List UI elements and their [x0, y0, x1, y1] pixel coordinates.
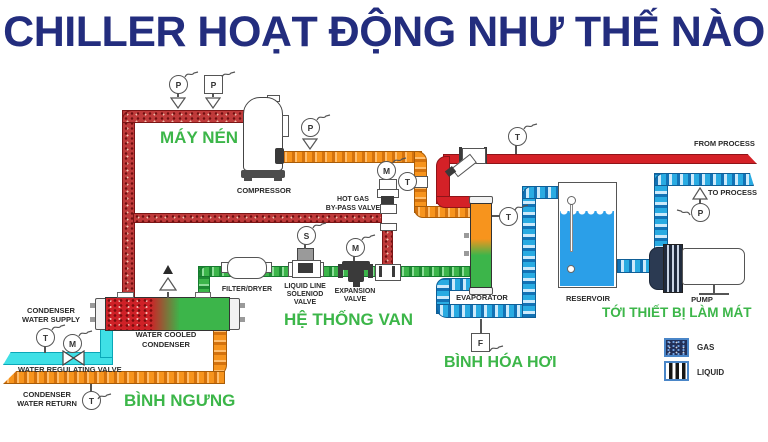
- down-arrow-icon: [205, 97, 221, 109]
- expansion-valve-body: [348, 269, 364, 282]
- evaporator-nub: [464, 233, 469, 238]
- condenser-nub: [240, 317, 245, 322]
- condenser-gas-texture: [106, 298, 154, 330]
- legend-liquid-swatch: [664, 361, 689, 381]
- gauge-flag-icon: [184, 70, 199, 79]
- compressor-foot: [244, 178, 252, 181]
- reservoir: [558, 182, 617, 288]
- relief-valve-icon: [159, 277, 177, 292]
- temperature-gauge-icon: T: [398, 172, 417, 191]
- condenser-outlet-collar: [195, 292, 211, 298]
- condenser-water-supply-riser: [100, 328, 113, 358]
- gauge-flag-icon: [523, 122, 538, 131]
- compressor-foot: [274, 178, 282, 181]
- gauge-flag-icon: [221, 70, 236, 79]
- condenser-return-label-1: CONDENSER: [10, 390, 84, 399]
- bypass-valve-fitting: [380, 223, 397, 231]
- filter-dryer: [227, 257, 267, 279]
- condenser-nub: [240, 303, 245, 308]
- discharge-pipe-vertical: [122, 110, 135, 300]
- reservoir-water: [560, 217, 614, 286]
- condenser-supply-label-1: CONDENSER: [12, 306, 90, 315]
- down-arrow-icon: [302, 138, 318, 150]
- legend-liquid-label: LIQUID: [697, 368, 724, 377]
- chilled-pipe-bottom: [436, 304, 536, 318]
- compressor-outlet-fitting: [275, 148, 284, 164]
- evaporator: [469, 196, 493, 296]
- gauge-flag-icon: [676, 208, 691, 217]
- binh-hoa-hoi-label: BÌNH HÓA HƠI: [444, 354, 557, 372]
- hot-gas-label-2: BY-PASS VALVE: [322, 204, 384, 213]
- discharge-pipe-top: [122, 110, 246, 123]
- solenoid-label-2: SOLENIOD: [277, 291, 333, 299]
- from-process-pipe: [443, 154, 757, 164]
- evaporator-label: EVAPORATOR: [446, 293, 518, 302]
- water-cooled-label-2: CONDENSER: [128, 340, 204, 349]
- compressor-base: [241, 170, 285, 178]
- expansion-label-1: EXPANSION: [330, 288, 380, 296]
- hot-gas-label-1: HOT GAS: [322, 195, 384, 204]
- relief-arrow-icon: [162, 265, 174, 276]
- page-title: CHILLER HOẠT ĐỘNG NHƯ THẾ NÀO: [0, 8, 768, 57]
- reservoir-water-surface: [560, 211, 614, 217]
- compressor-label: COMPRESSOR: [228, 186, 300, 195]
- water-cooled-condenser: [95, 297, 240, 332]
- condenser-supply-label-2: WATER SUPPLY: [12, 315, 90, 324]
- legend-gas-swatch: [664, 338, 689, 357]
- gauge-flag-icon: [316, 113, 331, 122]
- gauge-flag-icon: [97, 392, 112, 401]
- pump: [649, 244, 749, 294]
- pressure-gauge-icon: P: [691, 203, 710, 222]
- condenser-water-supply-pipe: [3, 352, 113, 365]
- filter-dryer-label: FILTER/DRYER: [218, 285, 276, 294]
- chiller-diagram: CHILLER HOẠT ĐỘNG NHƯ THẾ NÀO: [0, 0, 768, 442]
- compressor: [241, 95, 287, 183]
- pump-collar: [663, 244, 683, 293]
- reservoir-label: RESERVOIR: [556, 294, 620, 303]
- gauge-stem: [480, 319, 482, 333]
- water-cooled-label-1: WATER COOLED: [128, 330, 204, 339]
- condenser-return-label-2: WATER RETURN: [10, 399, 84, 408]
- chilled-pipe-reservoir-inlet: [522, 186, 562, 199]
- hot-gas-bypass-down-pipe: [382, 228, 393, 268]
- to-process-label: TO PROCESS: [708, 188, 757, 197]
- water-regulating-valve-label: WATER REGULATING VALVE: [18, 365, 122, 374]
- hot-gas-bypass-branch-pipe: [133, 213, 382, 223]
- expansion-label-2: VALVE: [330, 296, 380, 304]
- down-arrow-icon: [170, 97, 186, 109]
- junction-band: [379, 266, 382, 277]
- compressor-side-bracket: [282, 115, 289, 137]
- solenoid-label-1: LIQUID LINE: [277, 283, 333, 291]
- pump-head: [649, 247, 664, 290]
- gauge-flag-icon: [78, 329, 93, 338]
- gauge-flag-icon: [361, 233, 376, 242]
- gauge-flag-icon: [489, 344, 504, 353]
- up-arrow-icon: [692, 187, 708, 200]
- relief-valve-stem: [167, 292, 169, 298]
- solenoid-label-3: VALVE: [277, 299, 333, 307]
- toi-thiet-bi-label: TỚI THIẾT BỊ LÀM MÁT: [602, 305, 752, 320]
- condenser-water-return-riser: [213, 328, 227, 376]
- level-indicator-knob: [567, 196, 576, 205]
- expansion-valve-tail: [353, 282, 360, 287]
- gauge-flag-icon: [312, 221, 327, 230]
- evaporator-nub: [464, 251, 469, 256]
- may-nen-label: MÁY NÉN: [160, 128, 238, 148]
- gauge-flag-icon: [392, 156, 407, 165]
- level-indicator-rod: [570, 204, 573, 252]
- junction-band: [392, 266, 395, 277]
- solenoid-valve-core: [298, 263, 313, 273]
- pump-motor: [682, 248, 745, 285]
- pump-label: PUMP: [678, 295, 726, 304]
- condenser-inlet-collar: [117, 292, 134, 298]
- gauge-flag-icon: [51, 323, 66, 332]
- flow-gauge-icon: F: [471, 333, 490, 352]
- gauge-flag-icon: [514, 203, 529, 212]
- binh-ngung-label: BÌNH NGƯNG: [124, 391, 235, 411]
- evaporator-shell: [470, 203, 492, 288]
- he-thong-van-label: HỆ THỐNG VAN: [284, 310, 413, 330]
- legend-gas-label: GAS: [697, 343, 714, 352]
- from-process-evaporator-pipe: [436, 196, 472, 208]
- from-process-label: FROM PROCESS: [694, 139, 755, 148]
- level-indicator-float: [567, 265, 575, 273]
- to-process-pipe: [654, 173, 754, 186]
- reservoir-to-pump-pipe: [617, 259, 652, 273]
